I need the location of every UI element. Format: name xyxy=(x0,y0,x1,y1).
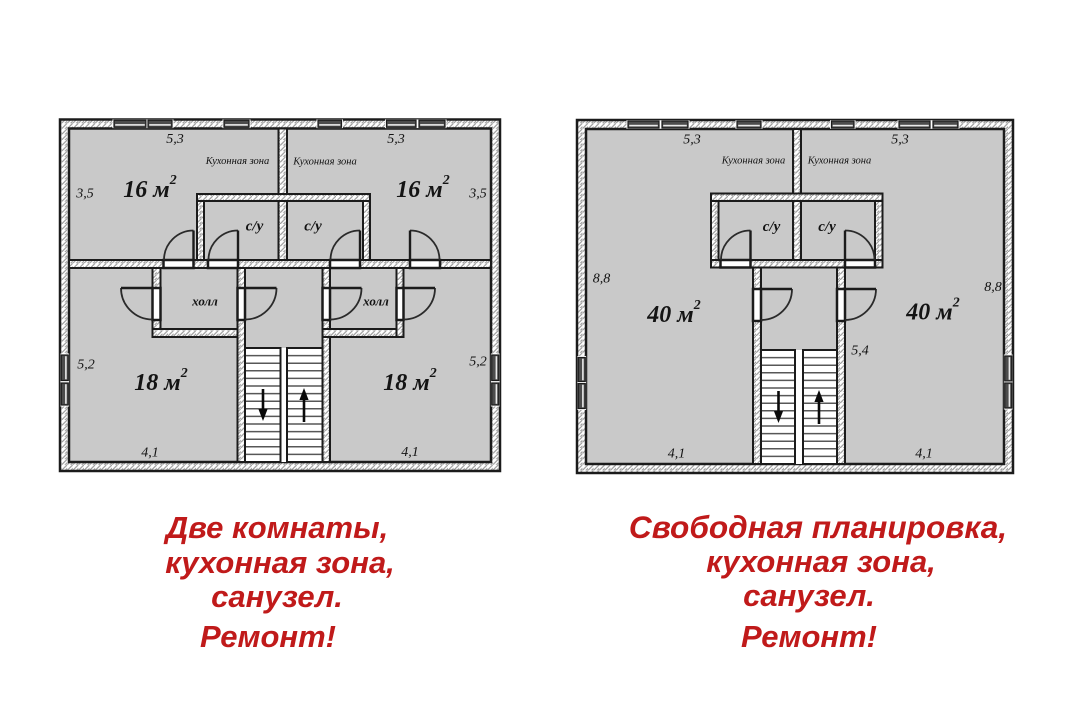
svg-text:5,3: 5,3 xyxy=(891,133,909,148)
svg-text:16 м2: 16 м2 xyxy=(123,172,176,203)
svg-text:5,3: 5,3 xyxy=(166,132,184,147)
svg-text:Ремонт!: Ремонт! xyxy=(200,619,336,654)
svg-text:кухонная зона,: кухонная зона, xyxy=(706,544,936,579)
svg-text:5,2: 5,2 xyxy=(469,355,487,370)
svg-text:18 м2: 18 м2 xyxy=(134,365,187,396)
svg-text:40 м2: 40 м2 xyxy=(646,297,700,328)
svg-text:4,1: 4,1 xyxy=(401,445,419,460)
svg-text:Кухонная зона: Кухонная зона xyxy=(721,156,786,167)
svg-text:5,3: 5,3 xyxy=(683,133,701,148)
svg-text:16 м2: 16 м2 xyxy=(396,172,449,203)
svg-text:40 м2: 40 м2 xyxy=(905,295,959,326)
svg-text:с/у: с/у xyxy=(818,219,836,235)
svg-text:с/у: с/у xyxy=(304,219,322,235)
svg-text:3,5: 3,5 xyxy=(75,187,94,202)
svg-text:с/у: с/у xyxy=(763,219,781,235)
svg-text:санузел.: санузел. xyxy=(743,578,875,613)
svg-text:18 м2: 18 м2 xyxy=(383,365,436,396)
svg-text:3,5: 3,5 xyxy=(468,187,487,202)
svg-text:холл: холл xyxy=(362,294,389,309)
svg-text:Кухонная зона: Кухонная зона xyxy=(292,157,357,168)
svg-text:с/у: с/у xyxy=(246,219,264,235)
svg-text:5,2: 5,2 xyxy=(77,358,95,373)
svg-text:8,8: 8,8 xyxy=(593,272,611,287)
svg-text:санузел.: санузел. xyxy=(211,579,343,614)
svg-text:Две комнаты,: Две комнаты, xyxy=(163,510,388,545)
svg-text:Кухонная зона: Кухонная зона xyxy=(807,156,872,167)
svg-text:5,4: 5,4 xyxy=(851,344,869,359)
svg-text:Ремонт!: Ремонт! xyxy=(741,619,877,654)
svg-text:5,3: 5,3 xyxy=(387,132,405,147)
svg-text:4,1: 4,1 xyxy=(668,447,686,462)
svg-text:Кухонная зона: Кухонная зона xyxy=(205,156,270,167)
svg-text:8,8: 8,8 xyxy=(984,280,1002,295)
svg-text:4,1: 4,1 xyxy=(915,447,933,462)
svg-text:кухонная зона,: кухонная зона, xyxy=(165,545,395,580)
svg-text:холл: холл xyxy=(191,294,218,309)
svg-text:4,1: 4,1 xyxy=(141,446,159,461)
svg-text:Свободная планировка,: Свободная планировка, xyxy=(629,509,1007,545)
